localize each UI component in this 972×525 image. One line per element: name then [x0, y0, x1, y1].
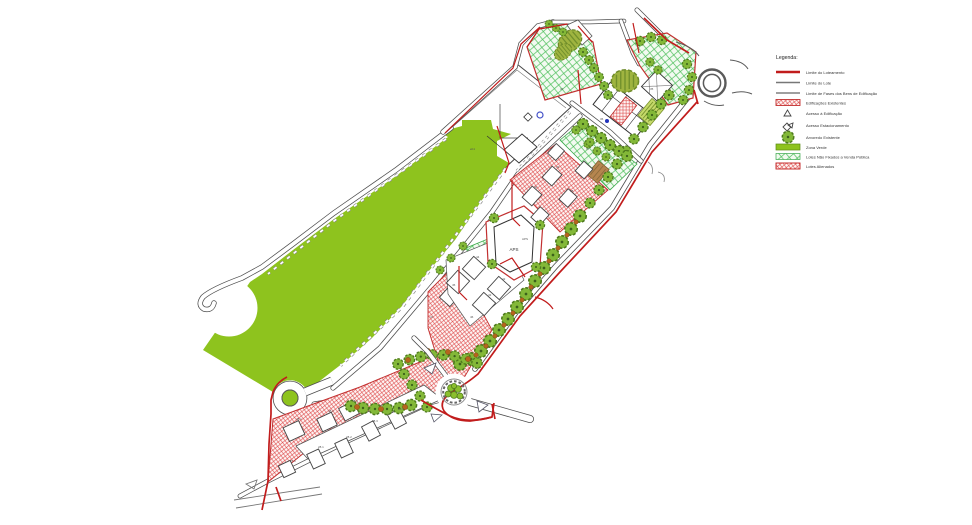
svg-text:APS: APS [509, 247, 518, 252]
svg-text:Zona Verde: Zona Verde [806, 145, 827, 150]
svg-text:Arvoredo Existente: Arvoredo Existente [806, 135, 841, 140]
svg-text:34: 34 [560, 87, 564, 91]
svg-text:37: 37 [586, 147, 590, 151]
svg-text:eb1: eb1 [470, 147, 475, 151]
svg-text:39: 39 [556, 165, 560, 169]
svg-text:Lotes Alienados: Lotes Alienados [806, 164, 834, 169]
svg-text:48.1: 48.1 [296, 417, 302, 421]
svg-text:40: 40 [534, 185, 538, 189]
svg-text:48.2: 48.2 [328, 409, 334, 413]
svg-text:Legenda:: Legenda: [776, 55, 798, 61]
svg-text:Limite de Fases dos Bens de Ed: Limite de Fases dos Bens de Edificação [806, 91, 878, 96]
svg-text:42: 42 [502, 277, 506, 281]
svg-text:Acesso à Edificação: Acesso à Edificação [806, 111, 843, 116]
svg-text:28.1: 28.1 [318, 445, 324, 449]
svg-text:28.3: 28.3 [372, 419, 378, 423]
svg-text:47: 47 [430, 315, 434, 319]
svg-text:Limite do Lote: Limite do Lote [806, 81, 832, 86]
svg-text:36: 36 [600, 117, 604, 121]
svg-text:38: 38 [570, 189, 574, 193]
svg-text:APS: APS [522, 237, 528, 241]
svg-text:27.1: 27.1 [290, 459, 296, 463]
svg-text:Limite do Loteamento: Limite do Loteamento [806, 70, 845, 75]
svg-text:43: 43 [488, 293, 492, 297]
svg-text:Lotes Não Fixados a Venda Públ: Lotes Não Fixados a Venda Pública [806, 155, 870, 160]
svg-text:Acesso Estacionamento: Acesso Estacionamento [806, 123, 850, 128]
svg-text:28.4: 28.4 [398, 407, 404, 411]
svg-text:28.2: 28.2 [346, 435, 352, 439]
svg-text:33: 33 [548, 57, 552, 61]
svg-text:35: 35 [650, 87, 654, 91]
svg-text:48.3: 48.3 [352, 399, 358, 403]
svg-text:45: 45 [452, 283, 456, 287]
svg-text:44: 44 [476, 255, 480, 259]
svg-text:46: 46 [470, 315, 474, 319]
svg-text:Edificações Existentes: Edificações Existentes [806, 101, 846, 106]
